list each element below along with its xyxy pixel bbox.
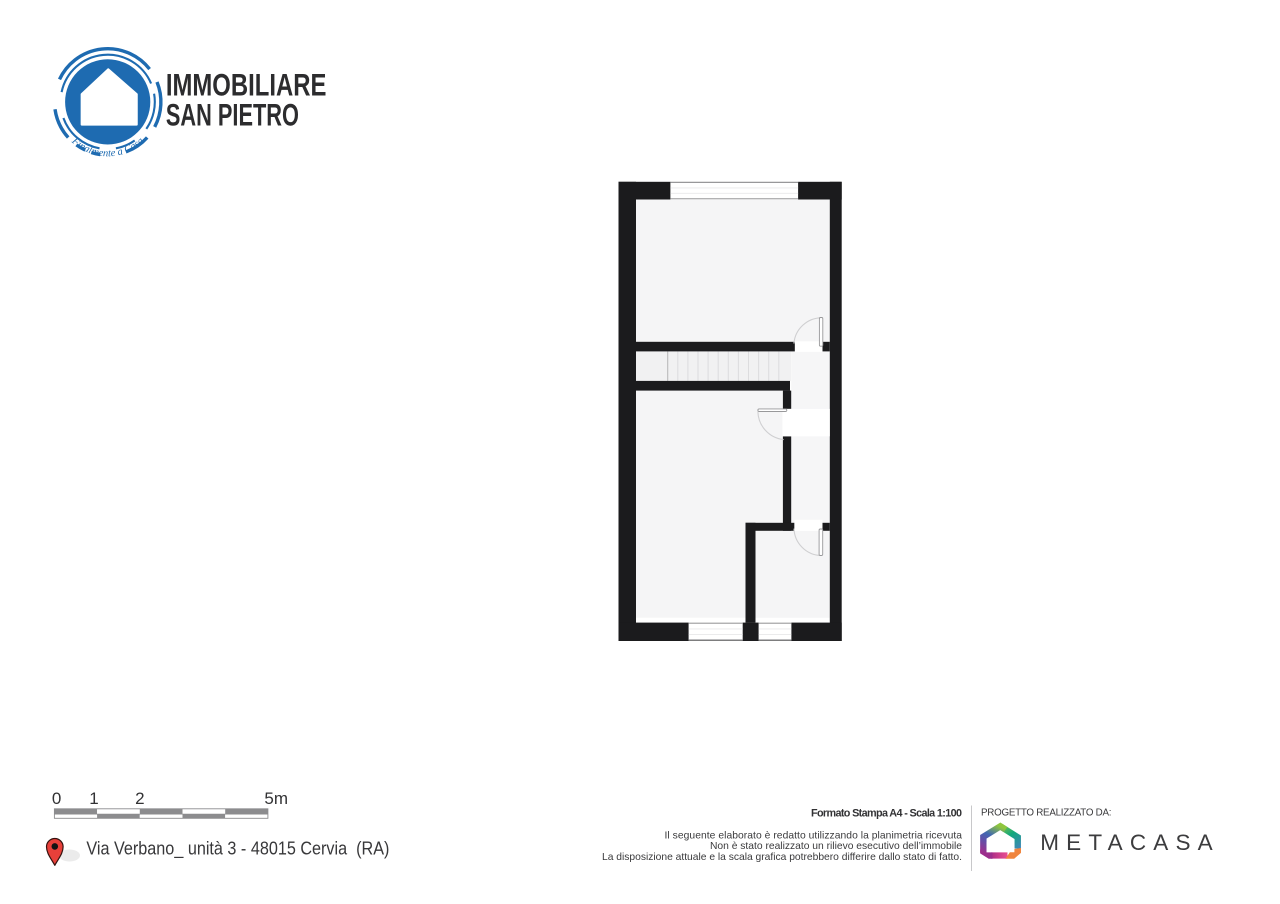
svg-text:PROGETTO REALIZZATO DA:: PROGETTO REALIZZATO DA: xyxy=(981,807,1112,818)
svg-text:La disposizione attuale e la s: La disposizione attuale e la scala grafi… xyxy=(602,852,962,863)
svg-text:Formato Stampa A4 - Scala 1:10: Formato Stampa A4 - Scala 1:100 xyxy=(811,807,962,819)
svg-text:0: 0 xyxy=(52,789,61,808)
svg-text:1: 1 xyxy=(89,789,98,808)
svg-text:Non è stato realizzato un rili: Non è stato realizzato un rilievo esecut… xyxy=(710,841,962,852)
svg-text:METACASA: METACASA xyxy=(1040,830,1213,855)
svg-text:Il seguente elaborato è redatt: Il seguente elaborato è redatto utilizza… xyxy=(665,830,963,841)
svg-text:5m: 5m xyxy=(264,789,288,808)
svg-text:SAN PIETRO: SAN PIETRO xyxy=(166,97,299,133)
svg-text:Via Verbano_ unità 3 - 48015 C: Via Verbano_ unità 3 - 48015 Cervia (RA) xyxy=(86,837,389,859)
svg-text:2: 2 xyxy=(135,789,144,808)
